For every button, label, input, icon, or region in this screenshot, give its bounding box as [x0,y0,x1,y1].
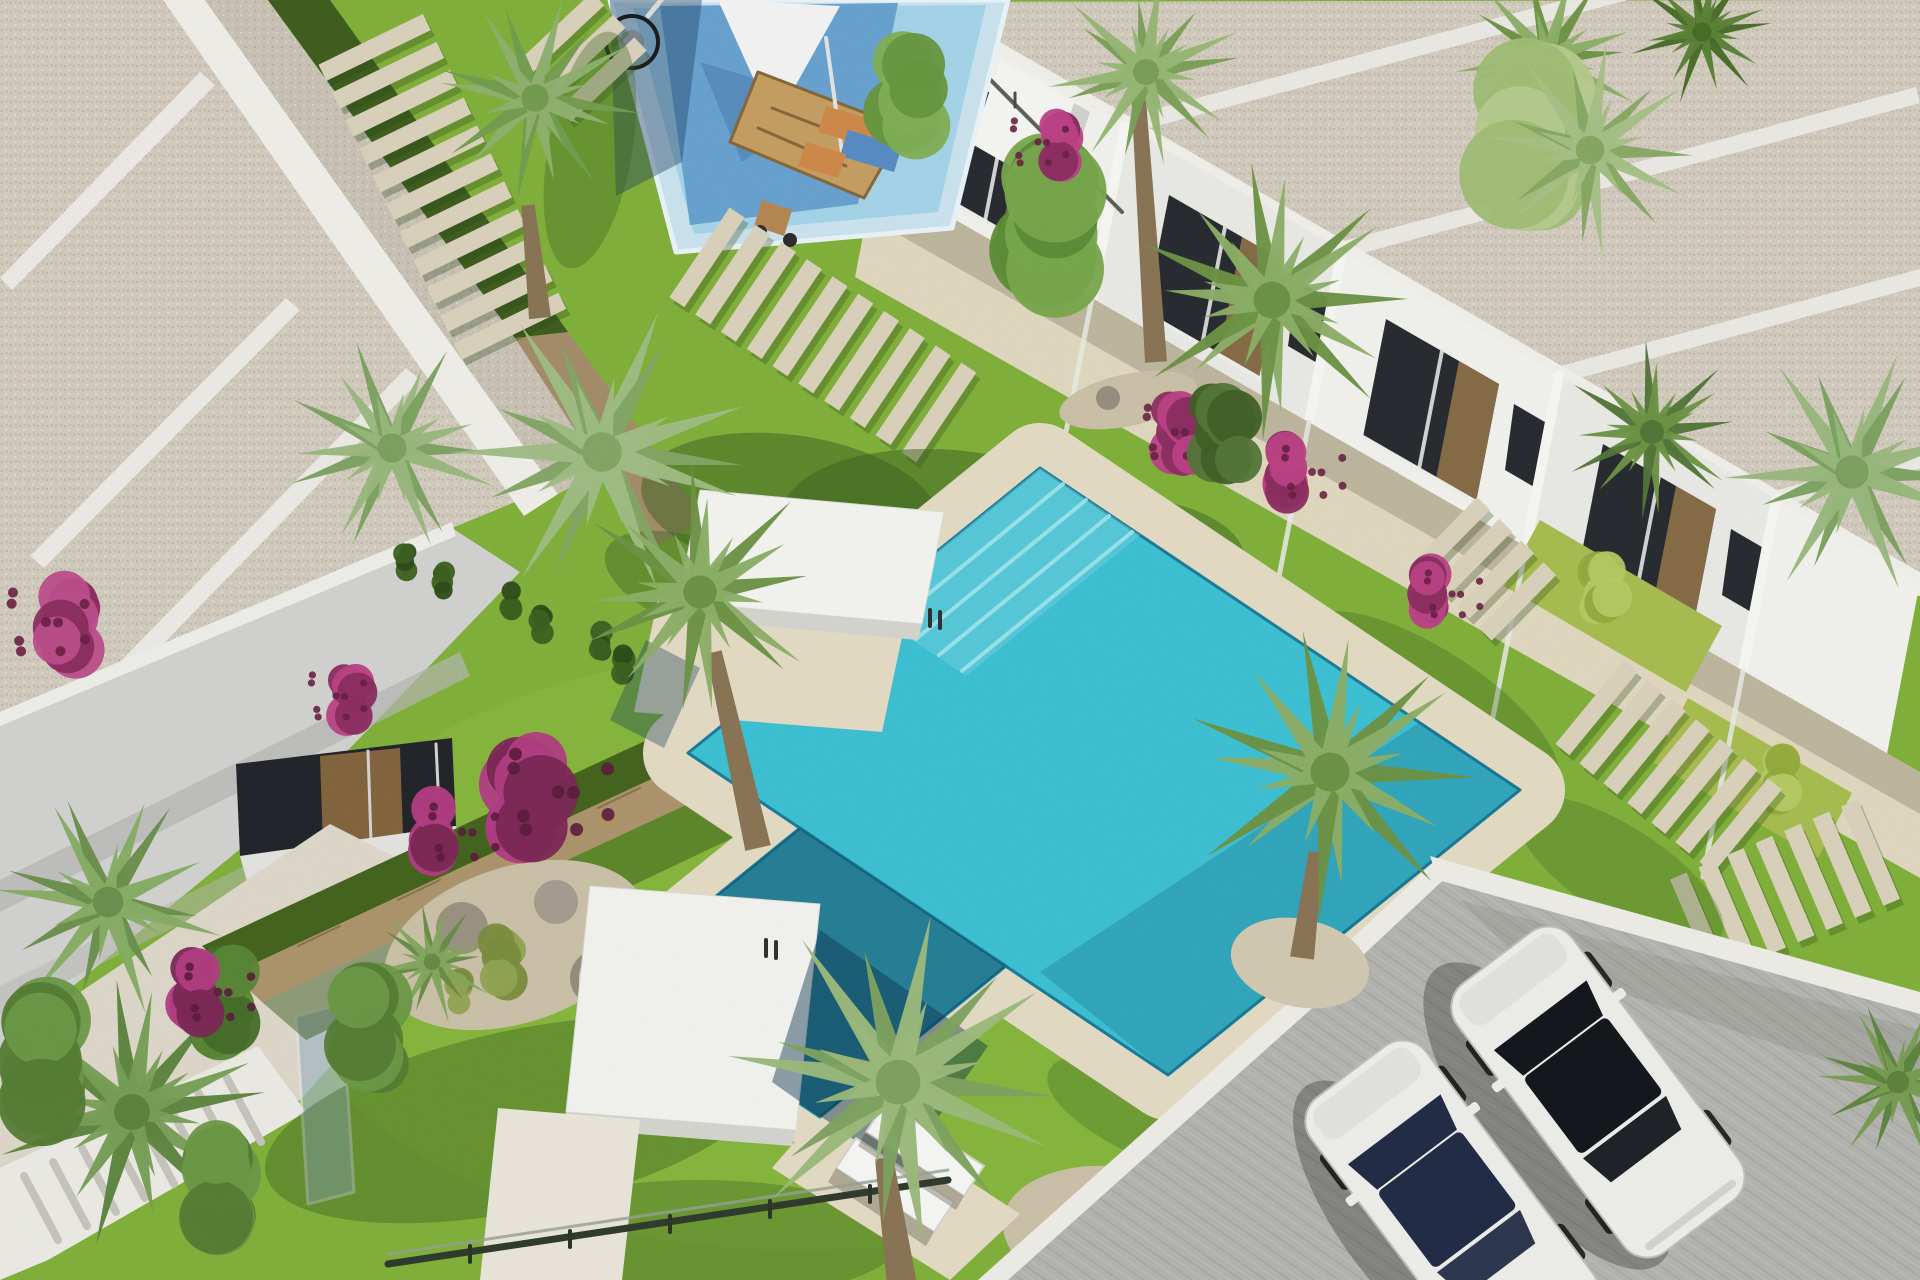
aerial-render-canvas [0,0,1920,1280]
render-noise-overlay [0,0,1920,1280]
aerial-render-stage [0,0,1920,1280]
